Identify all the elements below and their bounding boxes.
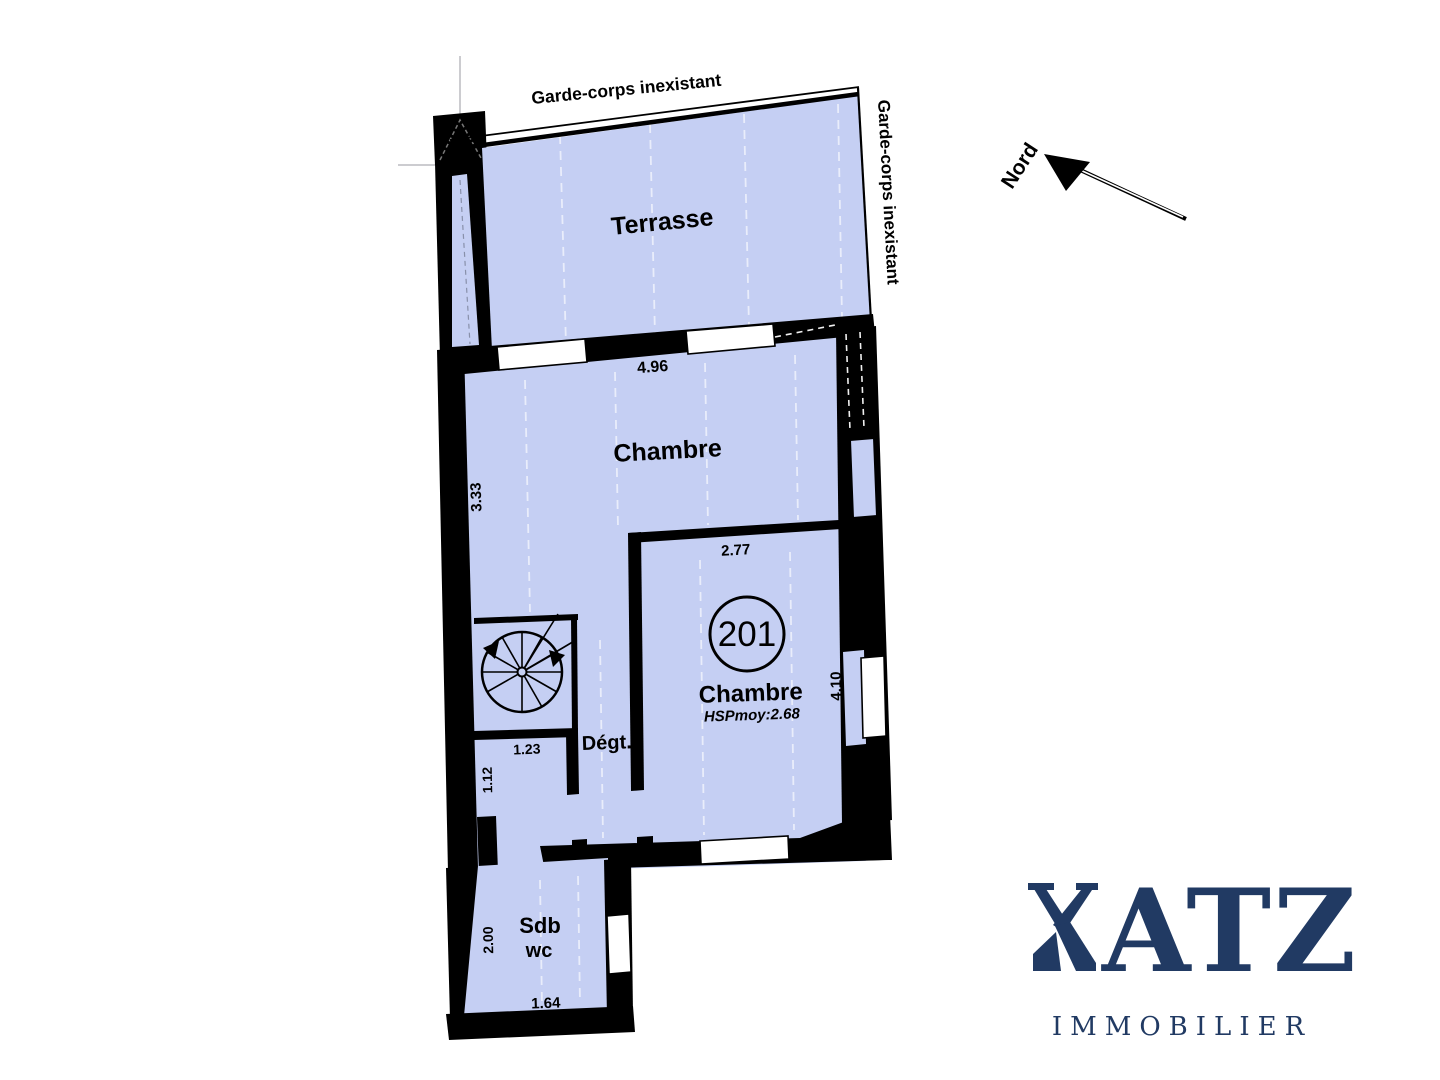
door-jamb-stub (477, 816, 498, 873)
dim-1-12: 1.12 (480, 767, 495, 794)
dim-4-96: 4.96 (637, 358, 669, 377)
dim-2-77: 2.77 (721, 541, 751, 560)
garde-corps-top-label: Garde-corps inexistant (530, 70, 722, 108)
logo-letter-k (1028, 883, 1098, 971)
chambre1-label: Chambre (613, 434, 723, 468)
north-indicator: Nord (997, 139, 1186, 219)
sdb-label: Sdb (519, 913, 561, 938)
bottom-window (700, 836, 789, 864)
logo-letters-atz: ATZ (1101, 864, 1358, 998)
logo-tagline: IMMOBILIER (1052, 1012, 1312, 1042)
chambre2-label: Chambre (698, 678, 803, 709)
dim-3-33: 3.33 (467, 482, 485, 512)
degagement-label: Dégt. (581, 731, 632, 755)
room-number: 201 (718, 615, 776, 654)
floor-plan-drawing: Terrasse Chambre 201 Chambre HSPmoy:2.68… (0, 0, 1440, 1080)
bathroom-window (607, 914, 631, 974)
dim-2-00: 2.00 (480, 926, 496, 954)
dim-4-10: 4.10 (828, 671, 846, 700)
dim-1-64: 1.64 (531, 994, 561, 1012)
right-window (861, 656, 886, 738)
right-niche (850, 438, 877, 518)
ceiling-height-label: HSPmoy:2.68 (704, 705, 801, 725)
dim-1-23: 1.23 (513, 741, 541, 758)
garde-corps-right-label: Garde-corps inexistant (874, 99, 903, 285)
wc-label: wc (525, 940, 553, 962)
katz-logo: ATZ IMMOBILIER (1028, 864, 1358, 1042)
floor-plan-page: Terrasse Chambre 201 Chambre HSPmoy:2.68… (0, 0, 1440, 1080)
right-wall (836, 326, 892, 824)
north-label: Nord (997, 139, 1043, 193)
main-interior (458, 330, 888, 872)
